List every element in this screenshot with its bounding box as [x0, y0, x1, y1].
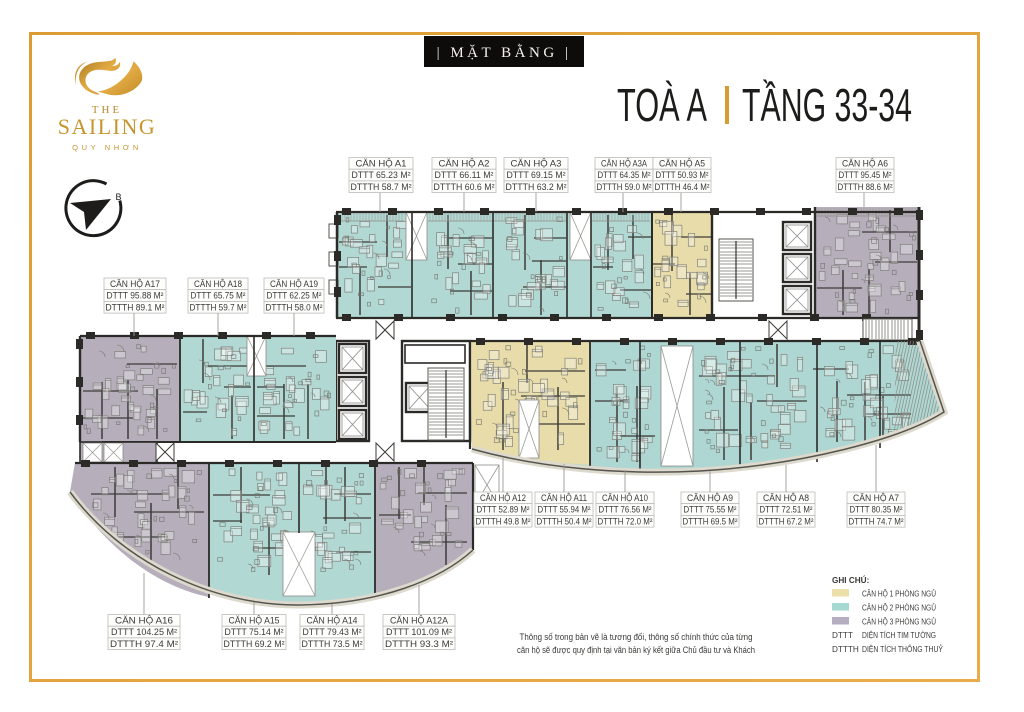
svg-text:CĂN HỘ A11: CĂN HỘ A11 [541, 493, 587, 503]
svg-text:DTTTH: DTTTH [832, 645, 859, 654]
svg-text:CĂN HỘ A8: CĂN HỘ A8 [763, 493, 809, 503]
svg-text:CĂN HỘ A15: CĂN HỘ A15 [229, 615, 280, 625]
svg-text:DTTT 55.94 M²: DTTT 55.94 M² [538, 505, 591, 515]
svg-text:CĂN HỘ A9: CĂN HỘ A9 [687, 493, 733, 503]
svg-text:DIỆN TÍCH TIM TƯỜNG: DIỆN TÍCH TIM TƯỜNG [862, 630, 936, 640]
svg-text:DTTTH 89.1 M²: DTTTH 89.1 M² [106, 302, 165, 312]
svg-text:CĂN HỘ A7: CĂN HỘ A7 [853, 493, 899, 503]
svg-text:SAILING: SAILING [58, 114, 157, 139]
svg-text:DTTT 75.14 M²: DTTT 75.14 M² [225, 627, 284, 637]
svg-text:CĂN HỘ A2: CĂN HỘ A2 [439, 158, 490, 168]
svg-text:DTTTH 58.0 M²: DTTTH 58.0 M² [266, 302, 323, 312]
svg-text:CĂN HỘ A18: CĂN HỘ A18 [194, 279, 242, 289]
svg-text:căn hộ sẽ được quy định tại vă: căn hộ sẽ được quy định tại văn bản ký k… [517, 645, 755, 655]
svg-text:DTTT 65.23 M²: DTTT 65.23 M² [352, 170, 411, 180]
svg-text:DTTT 75.55 M²: DTTT 75.55 M² [684, 505, 737, 515]
svg-text:DTTT 80.35 M²: DTTT 80.35 M² [850, 505, 903, 515]
svg-text:DTTTH 49.8 M²: DTTTH 49.8 M² [476, 516, 531, 526]
svg-text:DTTT: DTTT [832, 631, 853, 640]
svg-text:CĂN HỘ 3 PHÒNG NGỦ: CĂN HỘ 3 PHÒNG NGỦ [862, 616, 936, 627]
svg-text:CĂN HỘ A14: CĂN HỘ A14 [307, 615, 358, 625]
svg-text:DTTT 62.25 M²: DTTT 62.25 M² [267, 291, 322, 301]
svg-text:B: B [116, 192, 122, 202]
svg-text:CĂN HỘ A19: CĂN HỘ A19 [270, 279, 318, 289]
svg-text:DTTT 64.35 M²: DTTT 64.35 M² [598, 170, 651, 180]
svg-text:DTTTH 93.3 M²: DTTTH 93.3 M² [385, 639, 453, 649]
svg-text:CĂN HỘ A6: CĂN HỘ A6 [842, 158, 888, 168]
svg-text:Thông số trong bản vẽ là tương: Thông số trong bản vẽ là tương đối, thôn… [520, 632, 753, 642]
svg-text:DTTTH 97.4 M²: DTTTH 97.4 M² [110, 639, 178, 649]
svg-text:DIỆN TÍCH THÔNG THUỶ: DIỆN TÍCH THÔNG THUỶ [862, 643, 943, 654]
svg-text:DTTT 69.15 M²: DTTT 69.15 M² [507, 170, 566, 180]
svg-text:DTTT 52.89 M²: DTTT 52.89 M² [477, 505, 530, 515]
svg-text:DTTTH 59.0 M²: DTTTH 59.0 M² [597, 182, 652, 192]
svg-text:DTTTH 69.5 M²: DTTTH 69.5 M² [683, 516, 738, 526]
svg-text:TOÀ A: TOÀ A [617, 79, 707, 131]
svg-text:CĂN HỘ A16: CĂN HỘ A16 [115, 615, 173, 625]
svg-text:DTTT 95.45 M²: DTTT 95.45 M² [839, 170, 892, 180]
svg-text:DTTT 104.25 M²: DTTT 104.25 M² [111, 627, 177, 637]
svg-text:DTTT 66.11 M²: DTTT 66.11 M² [435, 170, 494, 180]
svg-text:TẦNG 33-34: TẦNG 33-34 [742, 79, 912, 131]
svg-text:DTTTH 63.2 M²: DTTTH 63.2 M² [506, 182, 567, 192]
svg-text:CĂN HỘ A10: CĂN HỘ A10 [602, 493, 648, 503]
svg-text:DTTTH 74.7 M²: DTTTH 74.7 M² [849, 516, 904, 526]
svg-text:DTTTH 50.4 M²: DTTTH 50.4 M² [537, 516, 592, 526]
svg-text:CĂN HỘ A17: CĂN HỘ A17 [110, 279, 160, 289]
svg-text:DTTTH 59.7 M²: DTTTH 59.7 M² [190, 302, 247, 312]
svg-text:DTTTH 67.2 M²: DTTTH 67.2 M² [759, 516, 814, 526]
svg-text:DTTT 101.09 M²: DTTT 101.09 M² [386, 627, 452, 637]
svg-text:DTTT 72.51 M²: DTTT 72.51 M² [760, 505, 813, 515]
svg-text:DTTT 79.43 M²: DTTT 79.43 M² [303, 627, 362, 637]
svg-text:DTTTH 88.6 M²: DTTTH 88.6 M² [838, 182, 893, 192]
svg-text:| MẶT BẰNG |: | MẶT BẰNG | [437, 44, 572, 61]
svg-text:QUY NHƠN: QUY NHƠN [72, 143, 142, 152]
svg-text:DTTTH 60.6 M²: DTTTH 60.6 M² [434, 182, 495, 192]
svg-text:DTTTH 73.5 M²: DTTTH 73.5 M² [302, 639, 363, 649]
svg-text:DTTTH 58.7 M²: DTTTH 58.7 M² [351, 182, 412, 192]
svg-text:DTTTH 46.4 M²: DTTTH 46.4 M² [655, 182, 710, 192]
svg-text:DTTTH 69.2 M²: DTTTH 69.2 M² [224, 639, 285, 649]
svg-text:CĂN HỘ A1: CĂN HỘ A1 [356, 158, 407, 168]
svg-text:DTTT 65.75 M²: DTTT 65.75 M² [191, 291, 246, 301]
svg-text:DTTT 95.88 M²: DTTT 95.88 M² [107, 291, 164, 301]
svg-text:CĂN HỘ A12A: CĂN HỘ A12A [390, 615, 448, 625]
svg-text:DTTT 76.56 M²: DTTT 76.56 M² [599, 505, 652, 515]
svg-text:CĂN HỘ A12: CĂN HỘ A12 [480, 493, 526, 503]
svg-text:GHI CHÚ:: GHI CHÚ: [832, 574, 869, 585]
svg-text:DTTTH 72.0 M²: DTTTH 72.0 M² [598, 516, 653, 526]
svg-text:DTTT 50.93 M²: DTTT 50.93 M² [656, 170, 709, 180]
svg-text:CĂN HỘ A5: CĂN HỘ A5 [659, 158, 705, 168]
svg-text:CĂN HỘ A3: CĂN HỘ A3 [511, 158, 562, 168]
svg-text:CĂN HỘ 1 PHÒNG NGỦ: CĂN HỘ 1 PHÒNG NGỦ [862, 588, 936, 599]
svg-text:CĂN HỘ 2 PHÒNG NGỦ: CĂN HỘ 2 PHÒNG NGỦ [862, 602, 936, 613]
svg-text:CĂN HỘ A3A: CĂN HỘ A3A [601, 158, 647, 168]
